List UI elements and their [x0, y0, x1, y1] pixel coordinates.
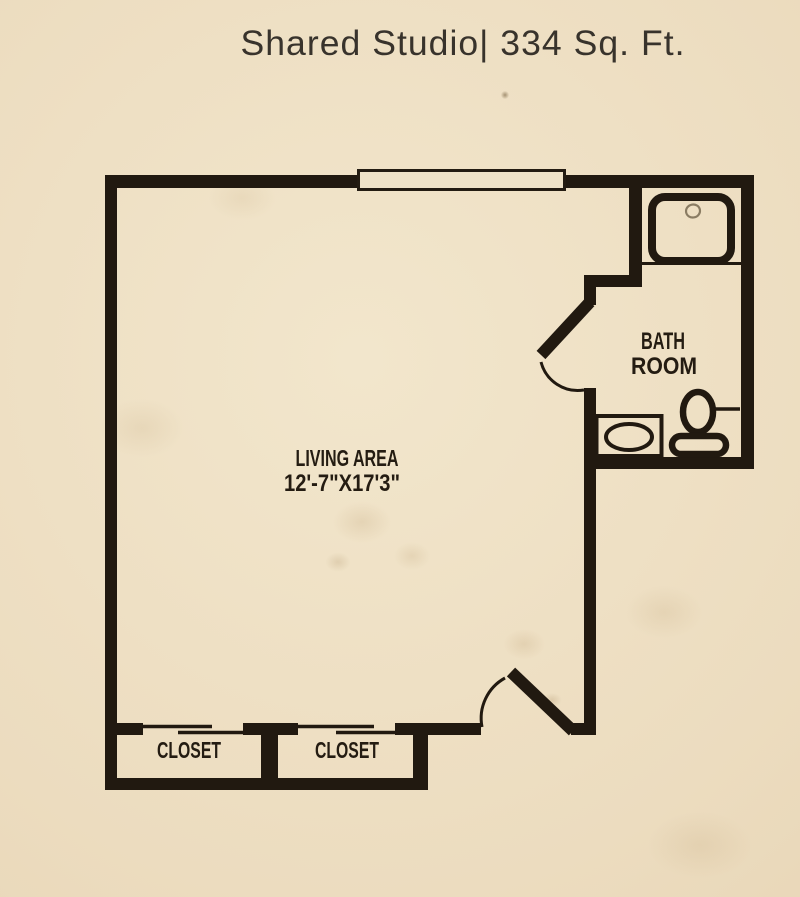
shower-drain [685, 203, 701, 219]
vanity-basin [606, 424, 652, 450]
toilet-icon [672, 392, 740, 454]
entry-door-swing-arc [481, 678, 505, 727]
bathroom-door-leaf [541, 302, 590, 355]
living-area-label: LIVING AREA [296, 445, 399, 471]
window-icon [359, 171, 565, 190]
entry-door-icon [481, 672, 573, 731]
bathroom-bottom-wall [584, 457, 754, 469]
top-wall-right [563, 175, 754, 188]
bottom-wall-left-stub [105, 723, 143, 735]
bathroom-door-icon [541, 302, 590, 391]
shower-partition-wall [629, 175, 642, 287]
right-wall [741, 175, 754, 469]
closet-right-label: CLOSET [315, 737, 379, 763]
closet-left-label: CLOSET [157, 737, 221, 763]
walls [105, 175, 754, 790]
page-title: Shared Studio| 334 Sq. Ft. [241, 24, 686, 63]
entry-left-wall [428, 723, 481, 735]
toilet-tank [672, 436, 726, 454]
living-area-dimensions: 12'-7"X17'3" [284, 470, 400, 497]
bathroom-label-line2: ROOM [631, 353, 697, 380]
floor-plan: Shared Studio| 334 Sq. Ft. [0, 0, 800, 897]
toilet-bowl [683, 392, 713, 432]
shower-icon [642, 197, 741, 264]
living-area-right-wall [584, 388, 596, 735]
bathroom-door-swing-arc [541, 362, 584, 391]
closet-bottom-wall [105, 778, 428, 790]
bathroom-label-line1: BATH [641, 328, 685, 355]
entry-door-leaf [511, 672, 573, 731]
shower-pan [652, 197, 731, 261]
top-wall-left [105, 175, 360, 188]
left-wall [105, 175, 117, 790]
vanity-sink-icon [597, 416, 662, 456]
floor-plan-page: Shared Studio| 334 Sq. Ft. [0, 0, 800, 897]
